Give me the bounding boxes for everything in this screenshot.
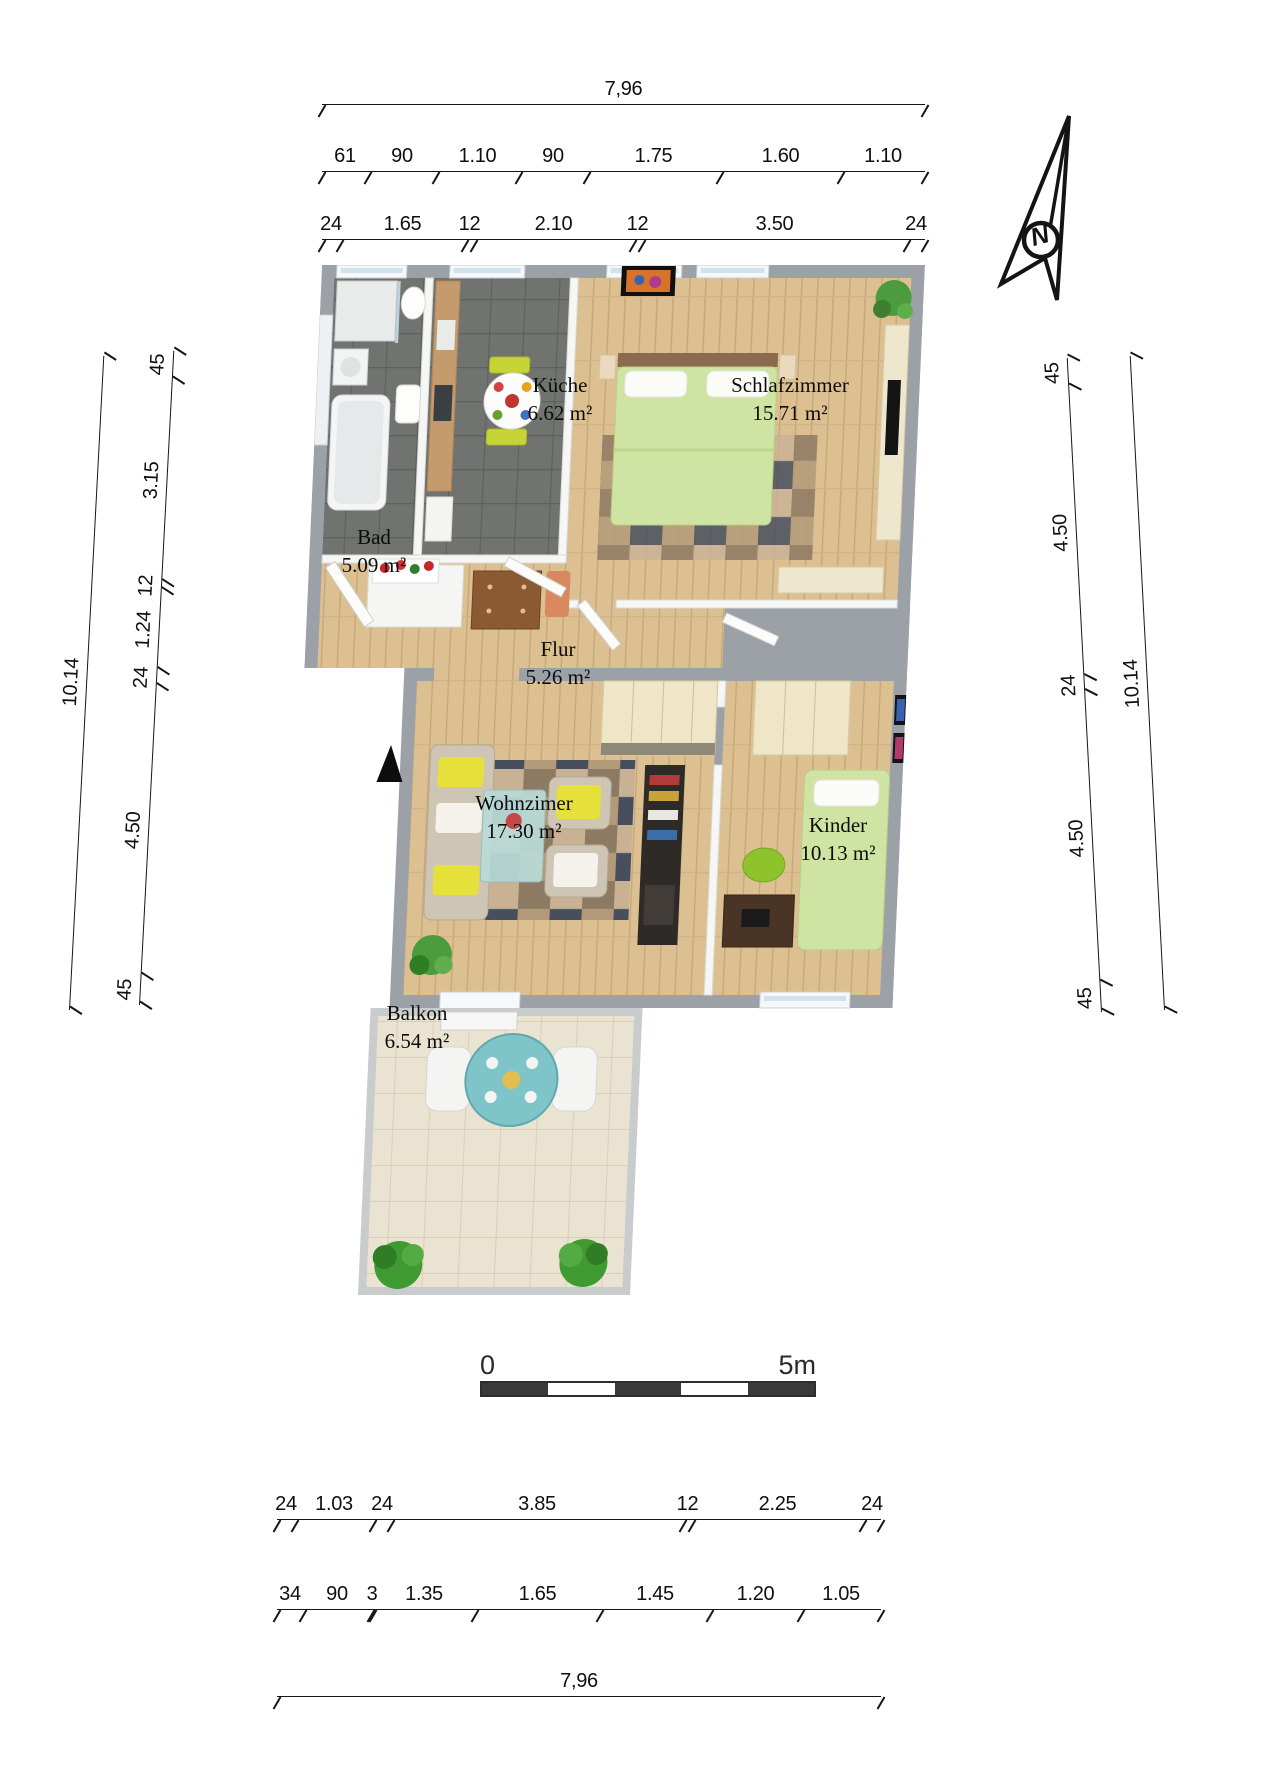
dim-bottom-row1: 24 1.03 24 3.85 12 2.25 24 [277, 1504, 881, 1520]
room-area: 5.09 m² [342, 552, 407, 580]
scale-segment [548, 1383, 614, 1395]
dim-segment: 4.50 [126, 686, 157, 976]
dim-left-segments: 45 4.50 24 1.24 12 3.15 45 [124, 350, 174, 1005]
pillow [813, 780, 879, 806]
dim-segment: 1.24 [142, 590, 162, 671]
dim-segment: 12 [633, 224, 642, 240]
dim-value: 10.14 [1119, 659, 1145, 709]
dim-tick [921, 104, 930, 117]
entrance-marker-icon [376, 745, 404, 782]
dim-segment: 3.50 [642, 224, 907, 240]
wardrobe [753, 681, 851, 755]
dim-segment: 90 [303, 1594, 371, 1610]
room-name: Flur [526, 636, 591, 664]
dim-segment: 10.14 [54, 355, 104, 1010]
dim-value: 1.35 [405, 1583, 443, 1606]
scale-segment [681, 1383, 747, 1395]
pillow [624, 371, 687, 397]
scale-end-label: 5m [778, 1350, 816, 1381]
room-area: 5.26 m² [526, 664, 591, 692]
dim-tick [318, 104, 327, 117]
north-arrow-body [1001, 116, 1069, 300]
room-label-balkon: Balkon 6.54 m² [385, 1000, 450, 1055]
room-area: 15.71 m² [731, 400, 849, 428]
dim-value: 2.25 [759, 1493, 797, 1516]
dim-segment: 1.65 [475, 1594, 600, 1610]
nightstand [599, 355, 616, 379]
dim-value: 1.20 [737, 1583, 775, 1606]
room-label-kueche: Küche 6.62 m² [528, 372, 593, 427]
dim-segment: 1.60 [720, 156, 841, 172]
dim-value: 1.05 [822, 1583, 860, 1606]
dim-segment: 90 [368, 156, 436, 172]
dim-segment: 24 [141, 670, 158, 687]
room-label-flur: Flur 5.26 m² [526, 636, 591, 691]
room-area: 6.54 m² [385, 1028, 450, 1056]
dim-bottom-overall: 7,96 [277, 1681, 881, 1697]
dim-value: 1.10 [864, 145, 902, 168]
dim-value: 45 [1040, 362, 1064, 385]
dim-value: 90 [542, 145, 564, 168]
room-name: Bad [342, 524, 407, 552]
dim-segment: 10.14 [1115, 356, 1165, 1011]
dim-segment: 1.65 [340, 224, 465, 240]
dim-segment: 1.03 [295, 1504, 373, 1520]
dim-value: 45 [113, 978, 137, 1001]
dim-value: 34 [279, 1583, 301, 1606]
scale-start-label: 0 [480, 1350, 495, 1381]
room-label-wohnzimmer: Wohnzimer 17.30 m² [475, 790, 572, 845]
dim-left-overall: 10.14 [54, 355, 104, 1010]
dim-segment: 12 [683, 1504, 692, 1520]
headboard [618, 353, 779, 367]
dim-value: 24 [320, 213, 342, 236]
dim-value: 1.24 [131, 610, 156, 649]
window-icon [449, 265, 525, 278]
dim-segment: 61 [322, 156, 368, 172]
dim-value: 45 [145, 353, 169, 376]
dim-segment: 12 [465, 224, 474, 240]
dim-value: 45 [1073, 987, 1097, 1010]
dim-segment: 7,96 [277, 1681, 881, 1697]
dim-bottom-row2: 34 90 3 1.35 1.65 1.45 1.20 1.05 [277, 1594, 881, 1610]
scale-bar: 0 5m [480, 1350, 816, 1397]
room-name: Küche [528, 372, 593, 400]
dim-segment: 1.10 [436, 156, 519, 172]
dim-segment: 1.35 [373, 1594, 475, 1610]
dim-value: 4.50 [1048, 514, 1073, 553]
balcony-bench [441, 1012, 518, 1030]
dim-segment: 4.50 [1069, 692, 1100, 983]
dim-value: 90 [391, 145, 413, 168]
fridge [425, 497, 453, 541]
dim-segment: 24 [373, 1504, 391, 1520]
dim-value: 61 [334, 145, 356, 168]
room-label-kinder: Kinder 10.13 m² [800, 812, 875, 867]
cushion [432, 865, 479, 895]
cooktop [433, 385, 453, 421]
scale-segment [615, 1383, 681, 1395]
room-name: Balkon [385, 1000, 450, 1028]
dim-value: 1.75 [635, 145, 673, 168]
dim-segment: 24 [277, 1504, 295, 1520]
dim-top-overall: 7,96 [322, 89, 925, 105]
dim-value: 4.50 [1064, 819, 1089, 858]
dim-segment: 1.05 [801, 1594, 881, 1610]
dim-segment: 12 [146, 582, 162, 591]
window-icon [336, 265, 407, 278]
dim-segment: 2.10 [474, 224, 633, 240]
dim-value: 1.60 [762, 145, 800, 168]
dim-value: 1.03 [315, 1493, 353, 1516]
laptop [741, 909, 770, 927]
dim-value: 90 [326, 1583, 348, 1606]
dim-segment: 45 [1085, 983, 1102, 1013]
dresser [778, 567, 884, 593]
scale-bar-segments [480, 1381, 816, 1397]
dim-value: 24 [905, 213, 927, 236]
dim-segment: 4.50 [1053, 387, 1084, 678]
dim-value: 2.10 [535, 213, 573, 236]
room-label-schlafzimmer: Schlafzimmer 15.71 m² [731, 372, 849, 427]
dim-segment: 34 [277, 1594, 303, 1610]
dim-segment: 3.85 [391, 1504, 683, 1520]
dim-segment: 1.20 [710, 1594, 801, 1610]
dining-chair [486, 429, 527, 445]
scale-segment [748, 1383, 814, 1395]
dining-chair [489, 357, 530, 373]
dim-segment: 24 [863, 1504, 881, 1520]
room-area: 17.30 m² [475, 818, 572, 846]
dim-segment: 24 [907, 224, 925, 240]
dim-segment: 2.25 [692, 1504, 863, 1520]
dim-segment: 7,96 [322, 89, 925, 105]
dim-segment: 24 [322, 224, 340, 240]
balcony-door [439, 992, 520, 1010]
dim-value: 10.14 [58, 657, 84, 707]
sink [395, 385, 421, 423]
north-arrow [995, 112, 1095, 307]
dim-value: 1.10 [459, 145, 497, 168]
dim-segment: 1.75 [587, 156, 720, 172]
dim-value: 7,96 [605, 78, 643, 101]
dim-value: 3.15 [139, 461, 164, 500]
dim-value: 3.50 [756, 213, 794, 236]
dim-value: 4.50 [121, 811, 146, 850]
dim-segment: 45 [157, 350, 174, 380]
room-area: 10.13 m² [800, 840, 875, 868]
dim-segment: 45 [1052, 358, 1069, 388]
room-name: Schlafzimmer [731, 372, 849, 400]
room-name: Kinder [800, 812, 875, 840]
dim-top-row2: 61 90 1.10 90 1.75 1.60 1.10 [322, 156, 925, 172]
dim-value: 1.45 [636, 1583, 674, 1606]
floorplan-canvas: 7,96 61 90 1.10 90 1.75 1.60 1.10 24 1.6… [0, 0, 1280, 1792]
cushion [437, 757, 484, 787]
dim-segment: 3.15 [146, 379, 173, 583]
dim-segment: 1.10 [841, 156, 925, 172]
dim-value: 3.85 [518, 1493, 556, 1516]
scale-segment [482, 1383, 548, 1395]
dim-value: 24 [371, 1493, 393, 1516]
dim-segment: 90 [519, 156, 587, 172]
room-label-bad: Bad 5.09 m² [342, 524, 407, 579]
dim-right-segments: 45 4.50 24 4.50 45 [1052, 358, 1102, 1013]
dim-value: 24 [861, 1493, 883, 1516]
room-area: 6.62 m² [528, 400, 593, 428]
wall-band [722, 608, 910, 668]
dim-segment: 45 [124, 975, 141, 1005]
room-name: Wohnzimer [475, 790, 572, 818]
window-icon [696, 265, 769, 278]
dim-segment: 24 [1068, 677, 1085, 693]
dim-segment: 1.45 [600, 1594, 710, 1610]
dim-value: 1.65 [519, 1583, 557, 1606]
dim-value: 1.65 [384, 213, 422, 236]
desk-chair [742, 848, 785, 882]
dim-right-overall: 10.14 [1115, 356, 1165, 1011]
dim-top-row3: 24 1.65 12 2.10 12 3.50 24 [322, 224, 925, 240]
dim-value: 24 [275, 1493, 297, 1516]
shower [335, 281, 398, 341]
flur-opening [433, 661, 519, 689]
dim-value: 7,96 [560, 1670, 598, 1693]
kitchen-sink [436, 320, 455, 350]
